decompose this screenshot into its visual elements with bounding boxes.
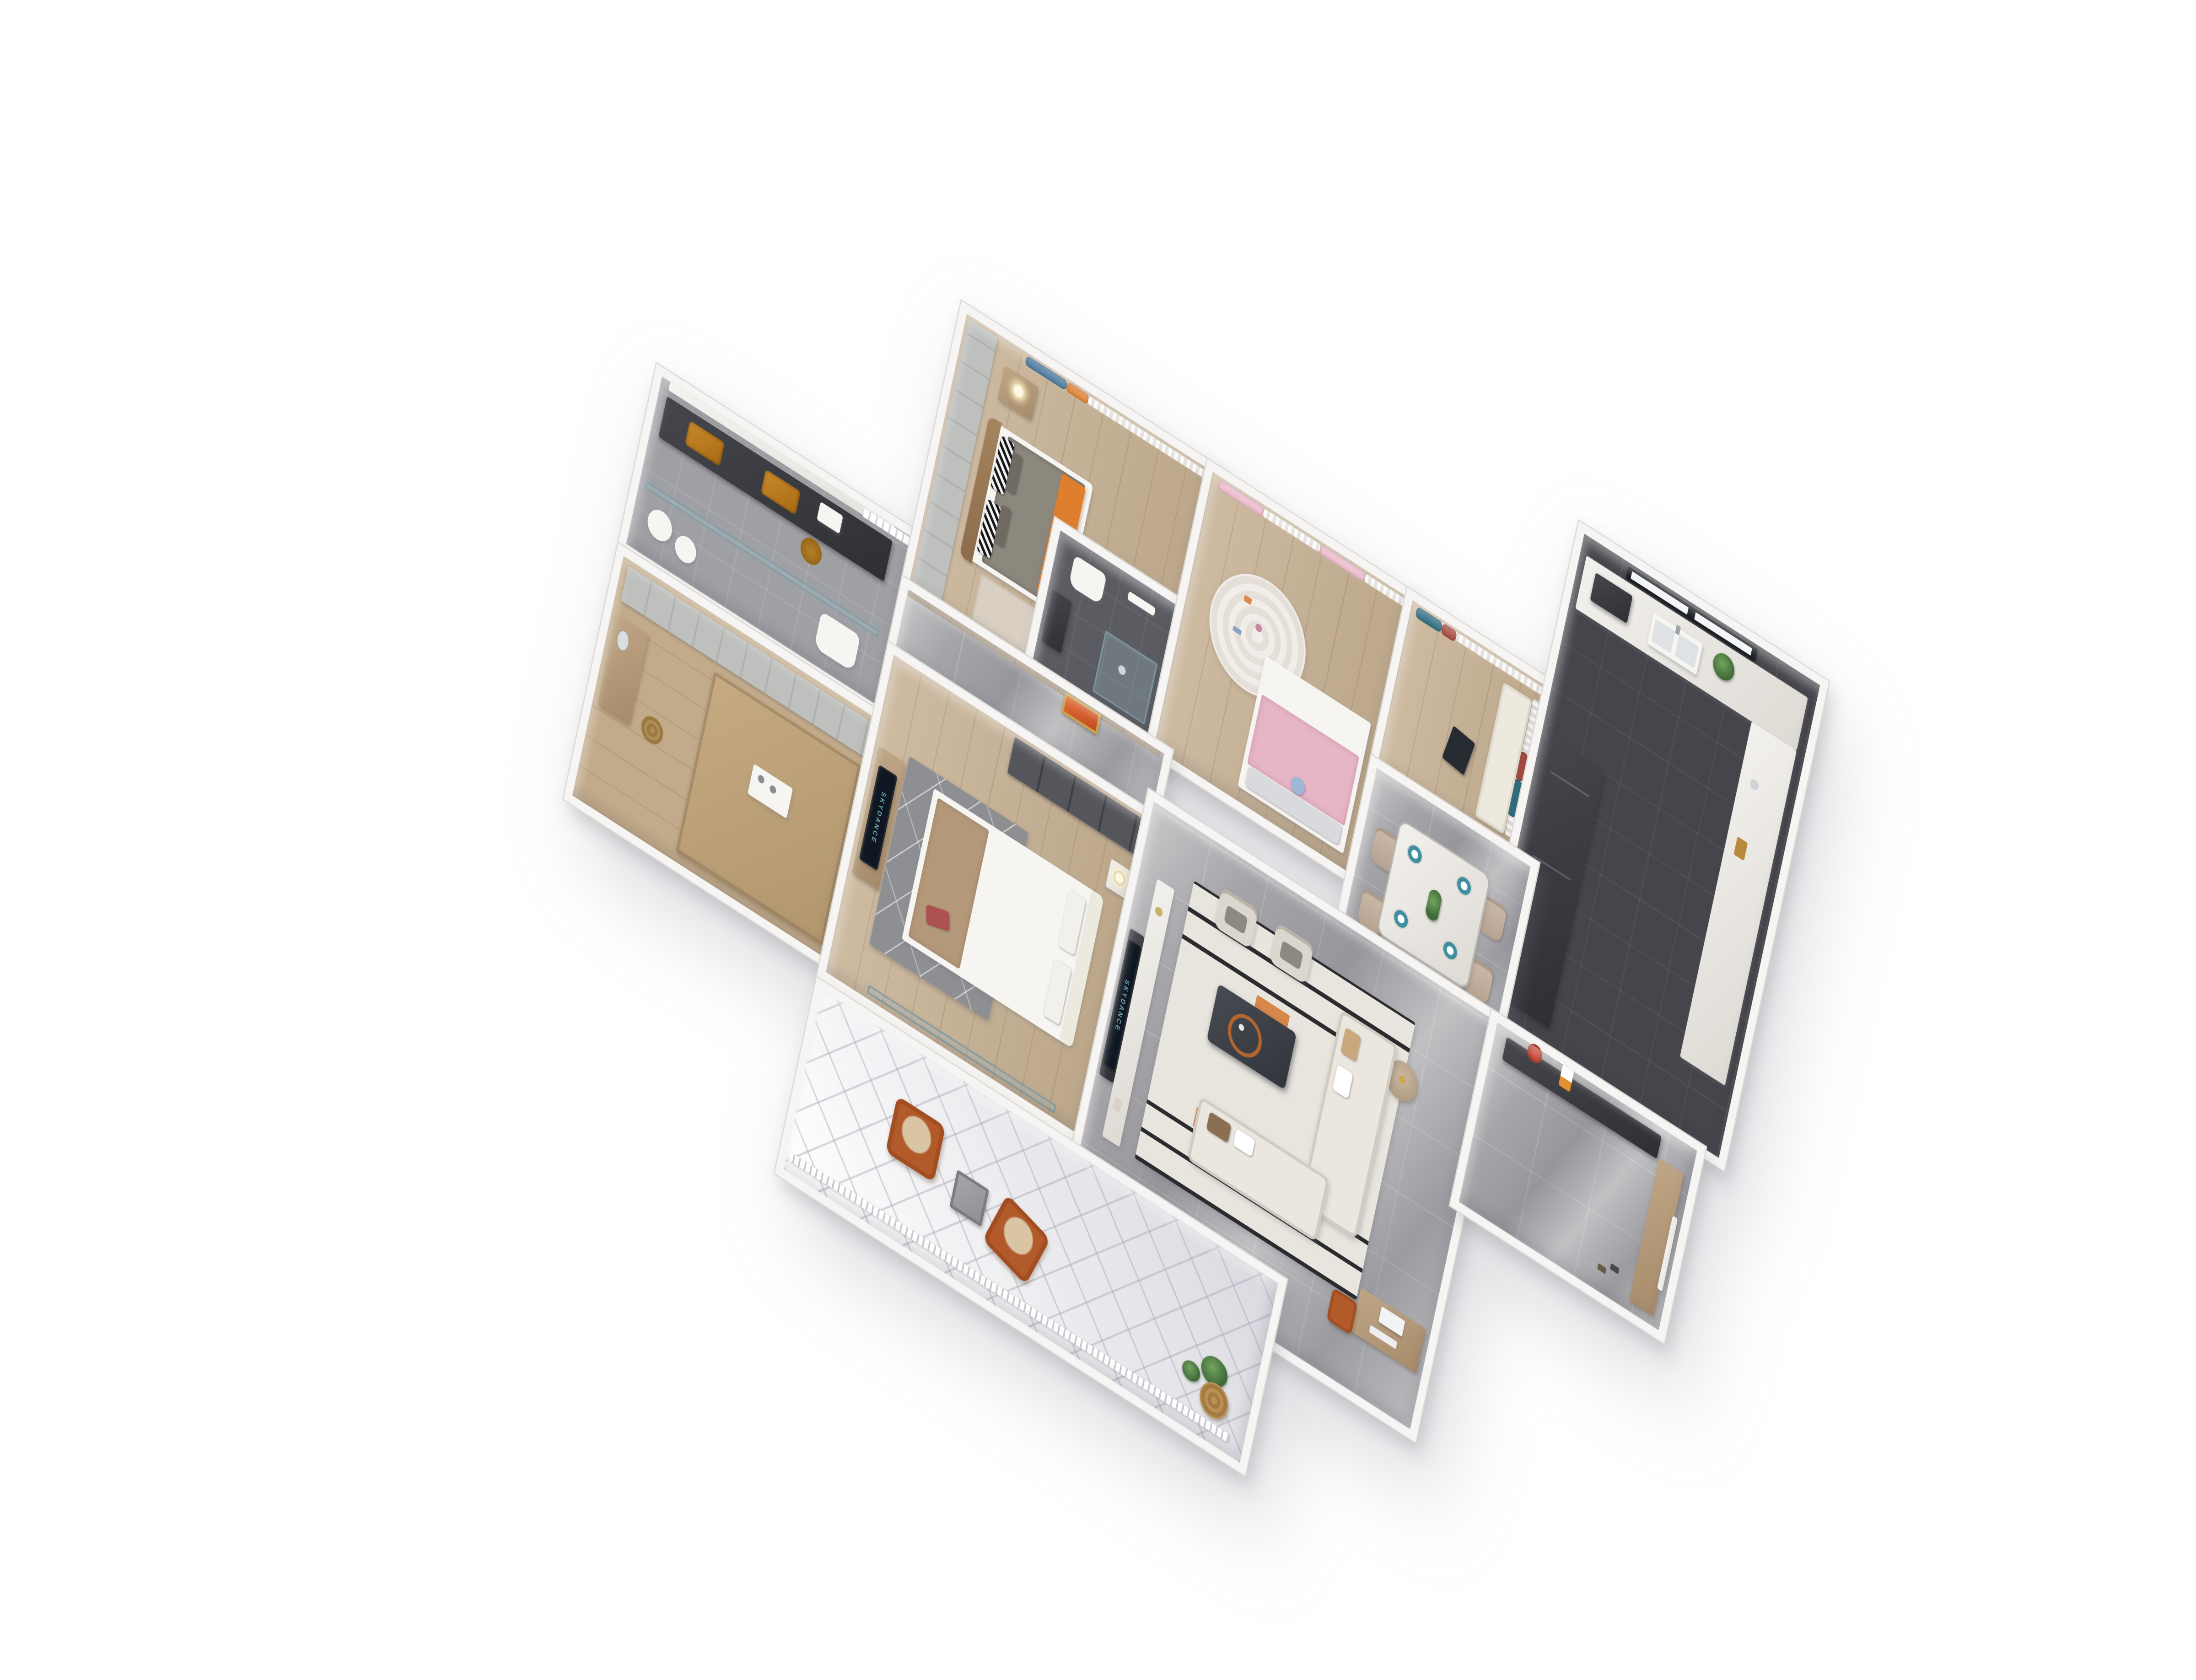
laundry-basket [673,531,698,568]
ensuite-vanity [1041,589,1072,653]
sheer-curtain [1087,396,1205,478]
leaning-picture-frame [1442,726,1475,775]
laundry-basket [645,504,674,547]
pink-curtain [1217,479,1265,517]
sink-basin [1651,619,1675,653]
floor-plan-stage: SKYDANCE SKYDANCE [0,0,2196,1680]
sink-basin [1675,634,1699,668]
place-setting [1456,874,1472,898]
rattan-stool [639,711,666,749]
place-setting [1393,907,1409,931]
shoes [1610,1263,1620,1275]
pink-curtain [1319,544,1366,582]
square-side-table [949,1169,989,1227]
kitchen-counter-east [1680,722,1797,1086]
orange-curtain [1066,382,1090,405]
place-setting [1442,938,1459,963]
balcony-armchair [885,1096,946,1183]
work-desk [1351,1287,1426,1373]
red-curtain [1441,623,1457,643]
balcony-armchair [983,1194,1050,1285]
shoe-cabinet [1629,1158,1684,1316]
towel-rail [1127,591,1156,617]
place-setting [1406,842,1423,867]
white-curtain [1263,508,1321,552]
teal-curtain [1415,606,1443,634]
greenery-centerpiece [1425,887,1443,924]
table-decor [1398,1074,1406,1085]
shoes [1597,1263,1607,1275]
chair-cushion [1279,940,1303,970]
sheer-curtain [1364,574,1406,607]
ensuite-toilet [1069,555,1107,605]
balcony-plant [1180,1356,1201,1385]
chair-cushion [1224,905,1248,934]
